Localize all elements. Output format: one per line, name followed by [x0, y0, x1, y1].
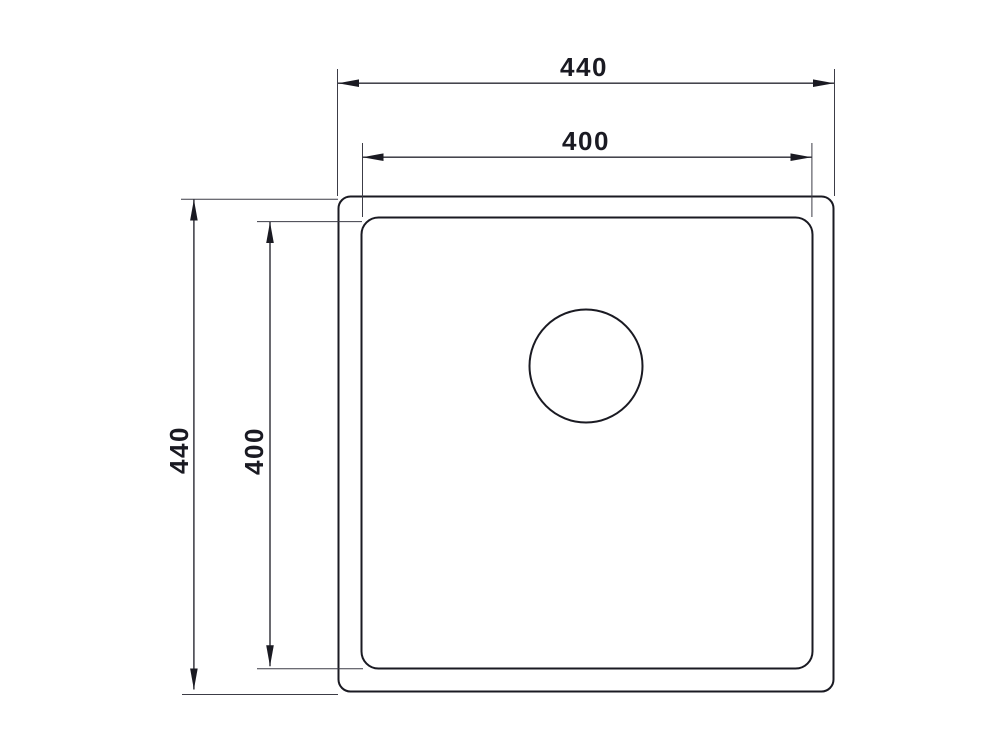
svg-text:440: 440 [560, 52, 608, 82]
svg-text:400: 400 [239, 427, 269, 475]
svg-text:400: 400 [562, 126, 610, 156]
svg-text:440: 440 [164, 426, 194, 474]
